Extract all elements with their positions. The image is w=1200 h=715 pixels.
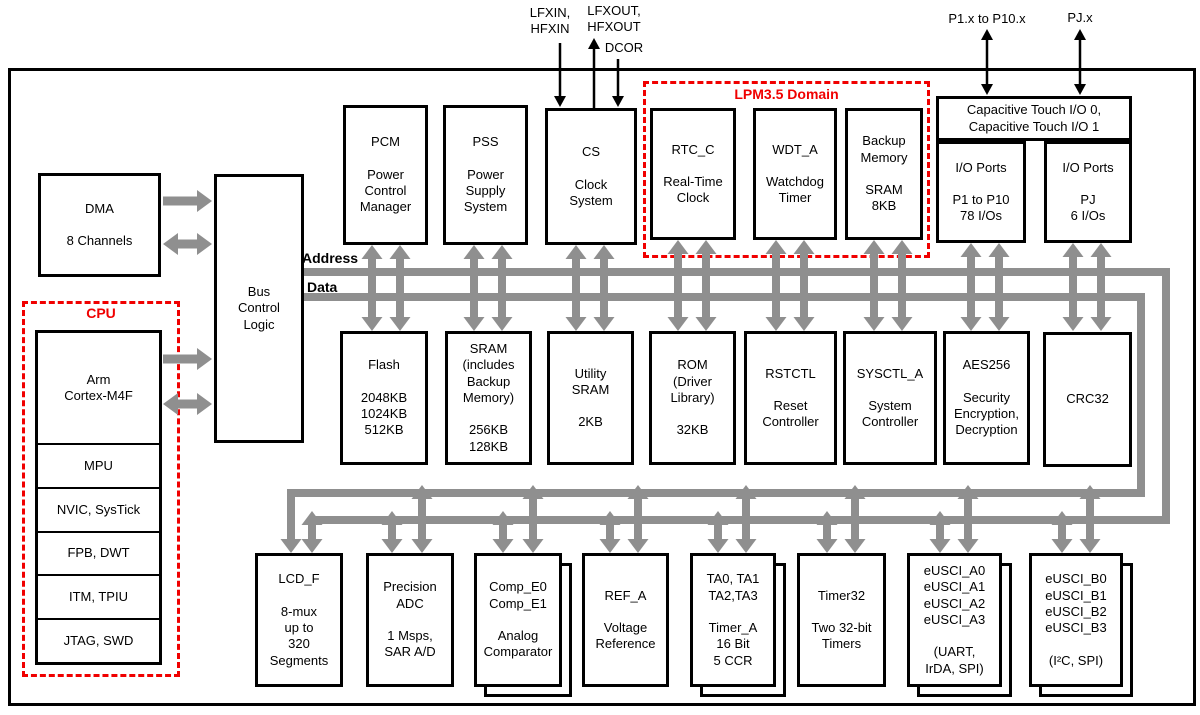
cpu-stack: Arm Cortex-M4F MPU NVIC, SysTick FPB, DW… bbox=[35, 330, 162, 665]
clock-system-block: CS Clock System bbox=[545, 108, 637, 245]
pss-block: PSS Power Supply System bbox=[443, 105, 528, 245]
pin-label-pj: PJ.x bbox=[1053, 10, 1107, 26]
timer32-block: Timer32 Two 32-bit Timers bbox=[797, 553, 886, 687]
pin-label-p1-p10: P1.x to P10.x bbox=[936, 11, 1038, 27]
cpu-fpb-dwt-block: FPB, DWT bbox=[38, 531, 159, 575]
rom-block: ROM (Driver Library) 32KB bbox=[649, 331, 736, 465]
lcd-block: LCD_F 8-mux up to 320 Segments bbox=[255, 553, 343, 687]
cpu-jtag-swd-block: JTAG, SWD bbox=[38, 618, 159, 662]
lpm35-domain-label: LPM3.5 Domain bbox=[643, 86, 930, 102]
pcm-block: PCM Power Control Manager bbox=[343, 105, 428, 245]
crc32-block: CRC32 bbox=[1043, 332, 1132, 467]
flash-block: Flash 2048KB 1024KB 512KB bbox=[340, 331, 428, 465]
eusci-b-block: eUSCI_B0 eUSCI_B1 eUSCI_B2 eUSCI_B3 (I²C… bbox=[1029, 553, 1123, 687]
adc-block: Precision ADC 1 Msps, SAR A/D bbox=[366, 553, 454, 687]
rtc-block: RTC_C Real-Time Clock bbox=[650, 108, 736, 240]
comparator-block: Comp_E0 Comp_E1 Analog Comparator bbox=[474, 553, 562, 687]
rstctl-block: RSTCTL Reset Controller bbox=[744, 331, 837, 465]
pin-label-lfxin-hfxin: LFXIN, HFXIN bbox=[516, 5, 584, 38]
block-diagram: LFXIN, HFXIN LFXOUT, HFXOUT DCOR P1.x to… bbox=[0, 0, 1200, 715]
backup-memory-block: Backup Memory SRAM 8KB bbox=[845, 108, 923, 240]
cpu-nvic-systick-block: NVIC, SysTick bbox=[38, 487, 159, 531]
pin-label-dcor: DCOR bbox=[598, 40, 650, 56]
io-ports-p1-p10-block: I/O Ports P1 to P10 78 I/Os bbox=[936, 141, 1026, 243]
sysctl-block: SYSCTL_A System Controller bbox=[843, 331, 937, 465]
dma-block: DMA 8 Channels bbox=[38, 173, 161, 277]
io-ports-pj-block: I/O Ports PJ 6 I/Os bbox=[1044, 141, 1132, 243]
address-bus-label: Address bbox=[302, 250, 358, 266]
eusci-a-block: eUSCI_A0 eUSCI_A1 eUSCI_A2 eUSCI_A3 (UAR… bbox=[907, 553, 1002, 687]
ref-block: REF_A Voltage Reference bbox=[582, 553, 669, 687]
wdt-block: WDT_A Watchdog Timer bbox=[753, 108, 837, 240]
captouch-block: Capacitive Touch I/O 0, Capacitive Touch… bbox=[936, 96, 1132, 141]
data-bus-label: Data bbox=[307, 279, 337, 295]
bus-control-logic-block: Bus Control Logic bbox=[214, 174, 304, 443]
pin-label-lfxout-hfxout: LFXOUT, HFXOUT bbox=[576, 3, 652, 36]
utility-sram-block: Utility SRAM 2KB bbox=[547, 331, 634, 465]
cpu-core-block: Arm Cortex-M4F bbox=[38, 333, 159, 443]
cpu-itm-tpiu-block: ITM, TPIU bbox=[38, 574, 159, 618]
cpu-domain-label: CPU bbox=[22, 305, 180, 321]
aes256-block: AES256 Security Encryption, Decryption bbox=[943, 331, 1030, 465]
timer-a-block: TA0, TA1 TA2,TA3 Timer_A 16 Bit 5 CCR bbox=[690, 553, 776, 687]
sram-block: SRAM (includes Backup Memory) 256KB 128K… bbox=[445, 331, 532, 465]
cpu-mpu-block: MPU bbox=[38, 443, 159, 487]
